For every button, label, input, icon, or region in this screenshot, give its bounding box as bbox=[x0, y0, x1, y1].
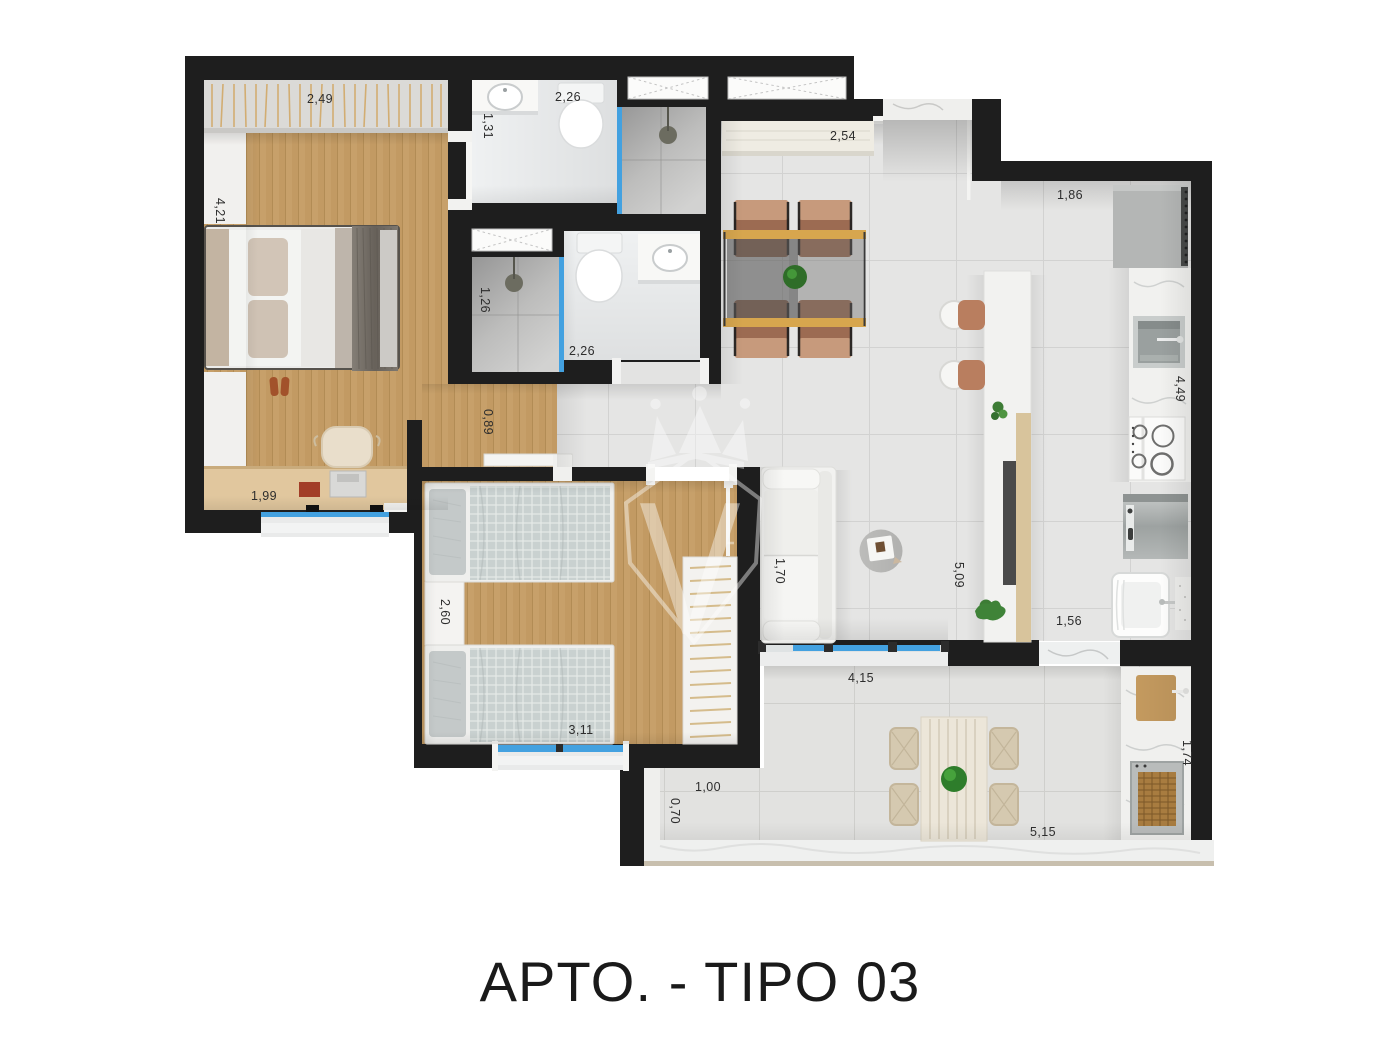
svg-text:V: V bbox=[639, 463, 740, 675]
svg-text:1,99: 1,99 bbox=[251, 489, 277, 503]
svg-text:2,26: 2,26 bbox=[569, 344, 595, 358]
svg-text:1,70: 1,70 bbox=[773, 558, 787, 584]
svg-text:1,74: 1,74 bbox=[1180, 740, 1194, 766]
svg-text:1,56: 1,56 bbox=[1056, 614, 1082, 628]
svg-text:APTO. - TIPO 03: APTO. - TIPO 03 bbox=[480, 950, 921, 1013]
svg-text:4,49: 4,49 bbox=[1173, 376, 1187, 402]
svg-text:1,00: 1,00 bbox=[695, 780, 721, 794]
svg-text:1,26: 1,26 bbox=[478, 287, 492, 313]
svg-text:2,54: 2,54 bbox=[830, 129, 856, 143]
svg-text:2,60: 2,60 bbox=[438, 599, 452, 625]
svg-text:0,70: 0,70 bbox=[668, 798, 682, 824]
svg-text:0,89: 0,89 bbox=[481, 409, 495, 435]
svg-text:1,31: 1,31 bbox=[481, 113, 495, 139]
svg-text:2,26: 2,26 bbox=[555, 90, 581, 104]
svg-text:4,15: 4,15 bbox=[848, 671, 874, 685]
svg-text:4,21: 4,21 bbox=[213, 198, 227, 224]
svg-text:2,49: 2,49 bbox=[307, 92, 333, 106]
svg-text:3,11: 3,11 bbox=[568, 723, 593, 737]
svg-text:5,09: 5,09 bbox=[952, 562, 966, 588]
svg-text:1,86: 1,86 bbox=[1057, 188, 1083, 202]
svg-text:5,15: 5,15 bbox=[1030, 825, 1056, 839]
